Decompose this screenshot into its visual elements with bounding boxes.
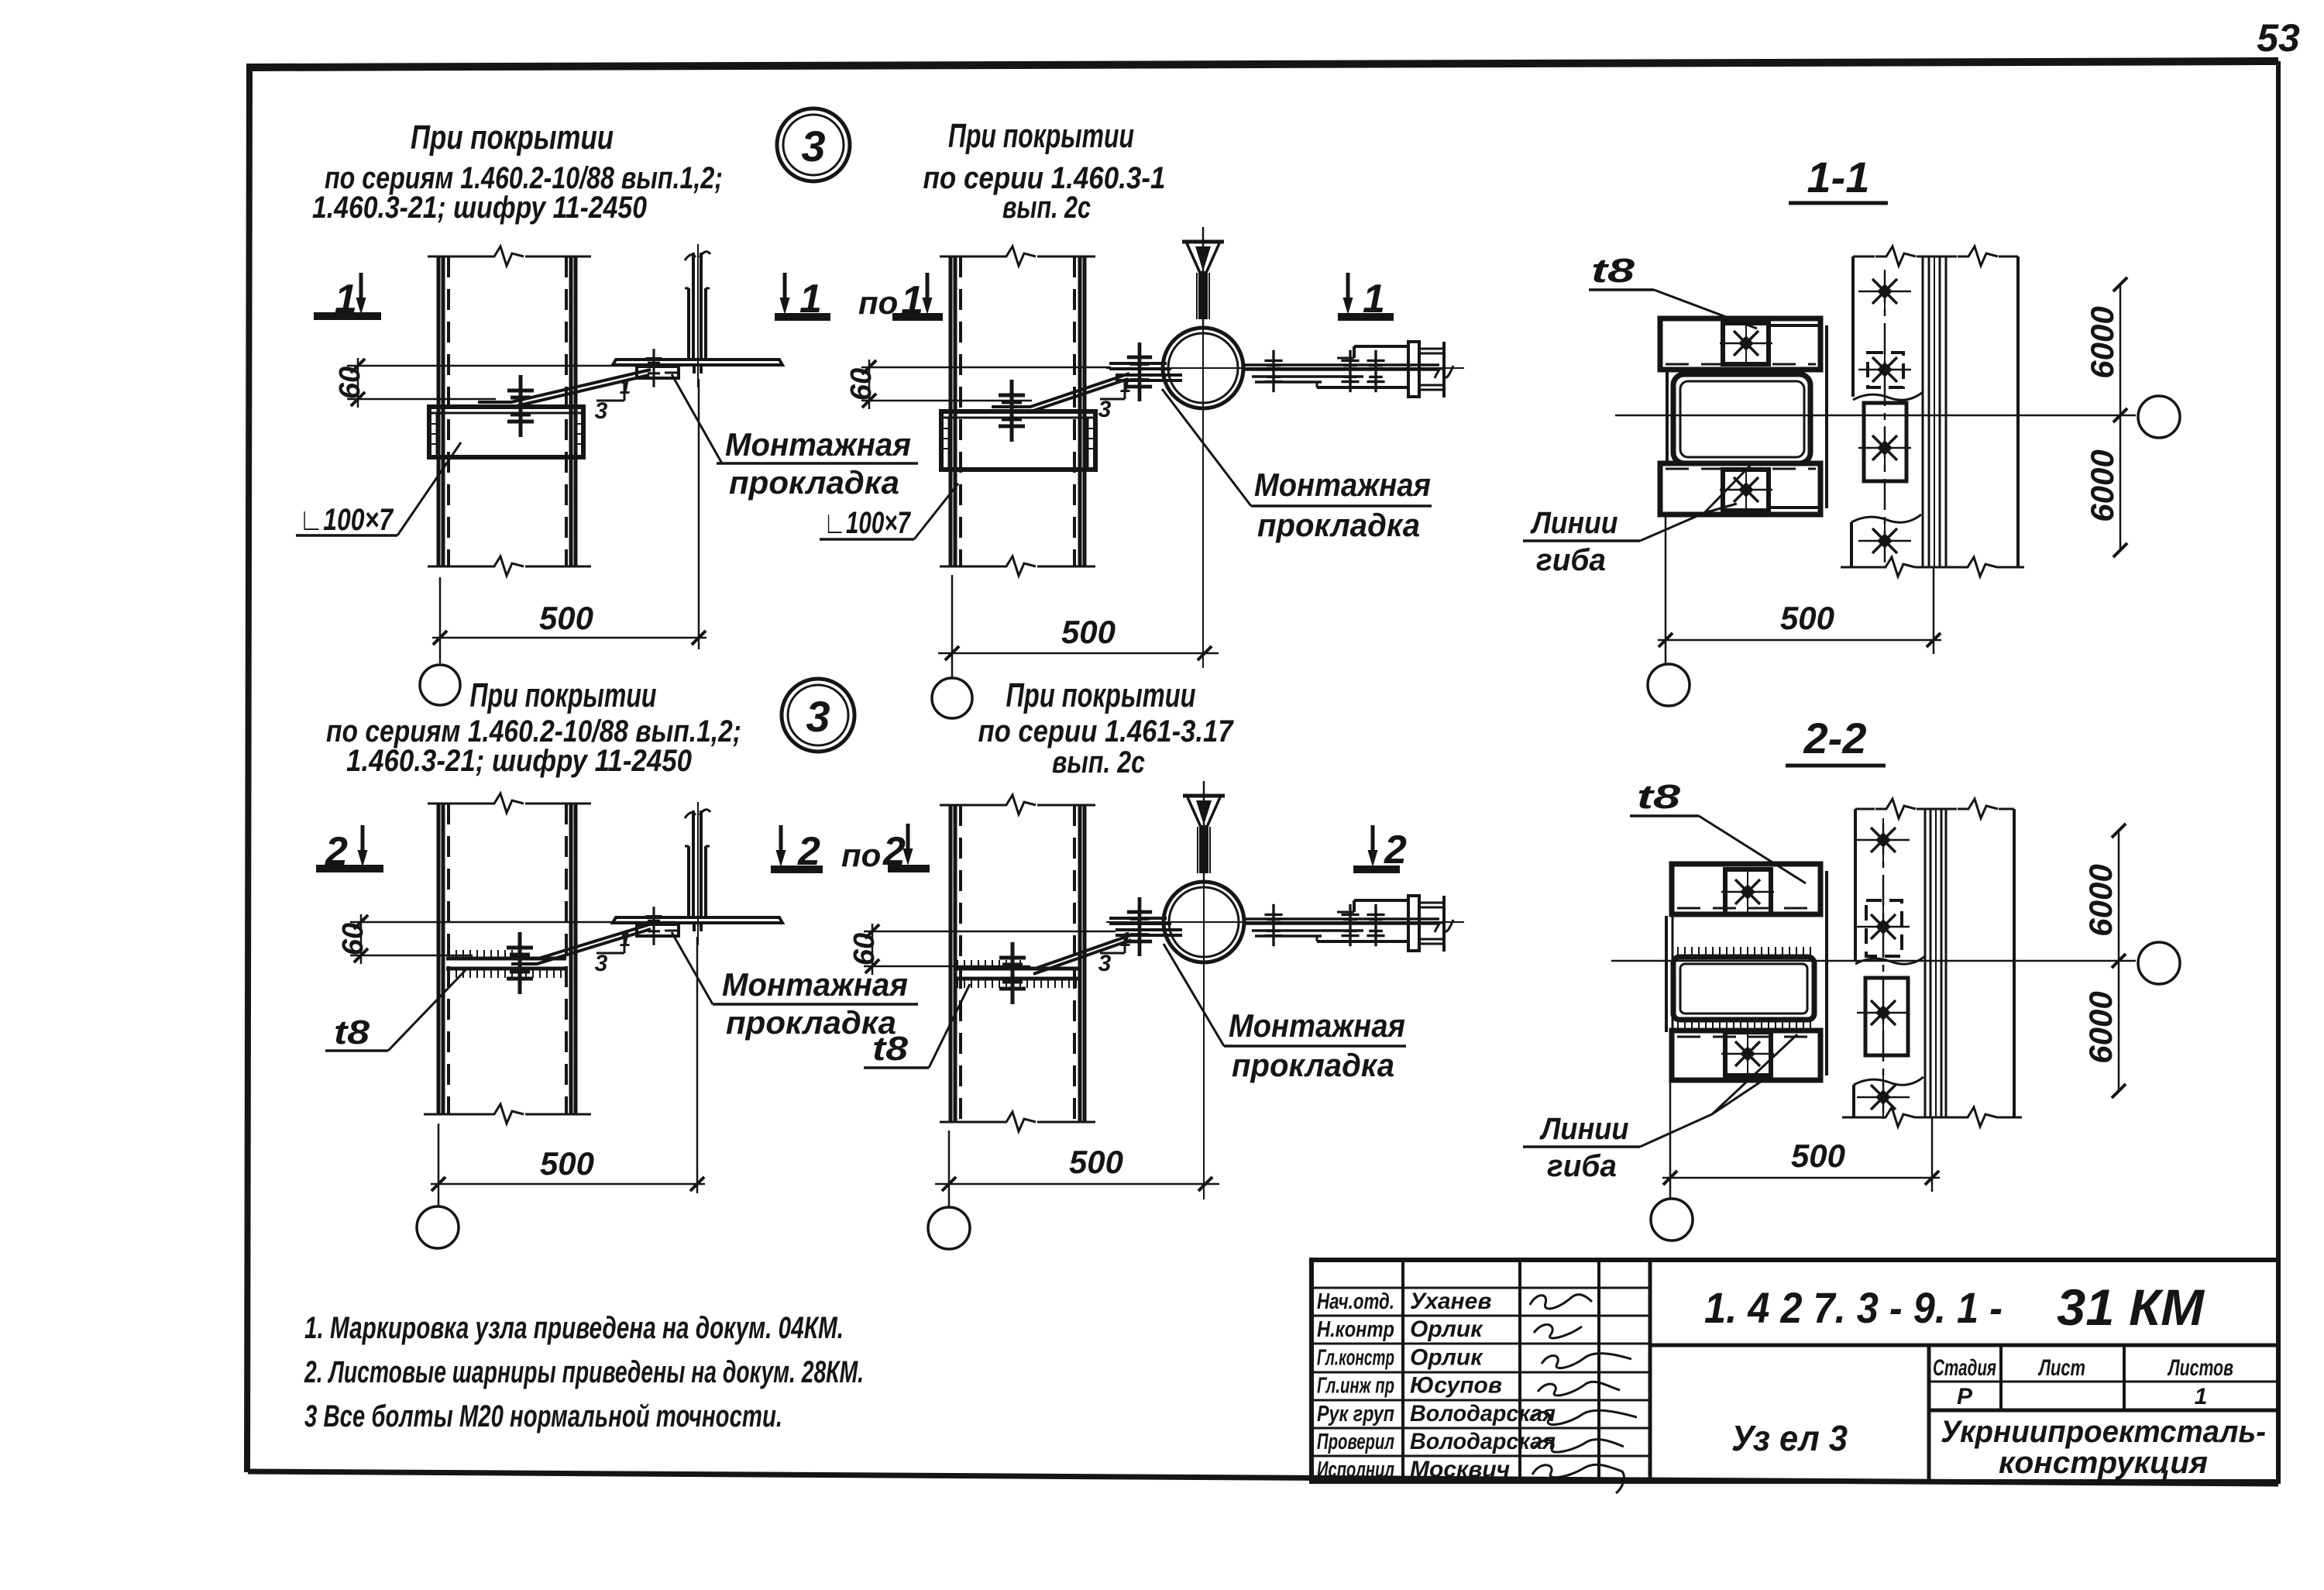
svg-text:1-1: 1-1	[1807, 153, 1870, 201]
svg-text:3: 3	[806, 692, 830, 741]
svg-text:При покрытии: При покрытии	[470, 676, 657, 714]
svg-text:t8: t8	[1637, 778, 1681, 816]
svg-text:Уз ел 3: Уз ел 3	[1731, 1418, 1848, 1458]
svg-text:6000: 6000	[2082, 991, 2119, 1063]
svg-text:Проверил: Проверил	[1317, 1430, 1394, 1454]
svg-text:60: 60	[848, 933, 881, 965]
svg-text:500: 500	[1791, 1137, 1845, 1174]
svg-text:Монтажная: Монтажная	[725, 426, 911, 463]
svg-text:500: 500	[539, 600, 593, 636]
svg-text:Н.контр: Н.контр	[1317, 1317, 1394, 1342]
svg-text:t8: t8	[872, 1030, 909, 1068]
svg-text:3 Все болты М20 нормально: 3 Все болты М20 нормальной точности.	[304, 1399, 782, 1433]
svg-text:∟100×7: ∟100×7	[299, 503, 394, 537]
svg-text:Линии: Линии	[1539, 1112, 1629, 1146]
svg-text:6000: 6000	[2082, 864, 2119, 936]
svg-text:Укрниипроектсталь-: Укрниипроектсталь-	[1941, 1415, 2266, 1449]
svg-text:t8: t8	[334, 1014, 370, 1051]
svg-text:прокладка: прокладка	[726, 1004, 896, 1041]
svg-text:2. Листовые шарниры приведе: 2. Листовые шарниры приведены на докум. …	[304, 1355, 864, 1389]
svg-text:Володарская: Володарская	[1410, 1429, 1556, 1454]
svg-text:Лист: Лист	[2038, 1355, 2085, 1381]
svg-text:6000: 6000	[2084, 449, 2120, 521]
svg-text:Монтажная: Монтажная	[1254, 466, 1431, 503]
svg-text:6000: 6000	[2084, 306, 2120, 378]
svg-text:Исполнил: Исполнил	[1317, 1457, 1394, 1482]
svg-text:3: 3	[595, 398, 608, 424]
svg-text:53: 53	[2257, 16, 2300, 60]
svg-text:500: 500	[1061, 614, 1116, 650]
svg-text:∟100×7: ∟100×7	[823, 506, 911, 540]
svg-text:При покрытии: При покрытии	[1006, 676, 1196, 714]
svg-text:по: по	[841, 837, 881, 873]
svg-text:конструкция: конструкция	[1999, 1446, 2208, 1480]
svg-text:500: 500	[540, 1145, 594, 1182]
svg-text:прокладка: прокладка	[1232, 1047, 1394, 1083]
svg-text:Монтажная: Монтажная	[722, 966, 908, 1003]
svg-text:Стадия: Стадия	[1933, 1355, 1996, 1381]
svg-text:гиба: гиба	[1536, 543, 1606, 577]
svg-text:3: 3	[595, 951, 608, 976]
svg-text:гиба: гиба	[1547, 1149, 1617, 1183]
svg-text:Линии: Линии	[1530, 506, 1618, 540]
svg-text:1: 1	[2195, 1384, 2208, 1409]
svg-text:500: 500	[1069, 1144, 1123, 1180]
svg-text:Гл.констр: Гл.констр	[1317, 1345, 1394, 1370]
svg-text:При покрытии: При покрытии	[411, 119, 614, 157]
svg-text:Листов: Листов	[2168, 1355, 2233, 1381]
svg-text:Уханев: Уханев	[1410, 1289, 1491, 1314]
svg-text:прокладка: прокладка	[729, 464, 899, 501]
svg-text:1. 4 2 7. 3 - 9. 1 -: 1. 4 2 7. 3 - 9. 1 -	[1704, 1283, 2003, 1332]
svg-text:Юсупов: Юсупов	[1410, 1373, 1502, 1399]
svg-text:3: 3	[1098, 397, 1112, 422]
svg-text:60: 60	[337, 923, 370, 955]
svg-text:прокладка: прокладка	[1257, 507, 1420, 543]
svg-text:по: по	[858, 284, 898, 321]
svg-text:31 КМ: 31 КМ	[2057, 1279, 2205, 1336]
svg-text:1. Маркировка узла приведен: 1. Маркировка узла приведена на докум. 0…	[304, 1311, 844, 1345]
svg-text:1: 1	[620, 375, 631, 398]
svg-text:1.460.3-21; шифру 11-2450: 1.460.3-21; шифру 11-2450	[346, 744, 692, 778]
svg-text:3: 3	[801, 122, 825, 170]
svg-text:Монтажная: Монтажная	[1229, 1007, 1405, 1044]
svg-text:1: 1	[620, 927, 631, 951]
svg-text:60: 60	[334, 367, 366, 399]
svg-text:60: 60	[845, 368, 878, 401]
svg-text:Москвич: Москвич	[1410, 1457, 1510, 1482]
svg-text:вып. 2с: вып. 2с	[1052, 745, 1145, 780]
svg-text:3: 3	[1098, 951, 1112, 976]
svg-text:по серии 1.461-3.17: по серии 1.461-3.17	[978, 714, 1235, 749]
svg-text:500: 500	[1780, 600, 1834, 636]
svg-text:Гл.инж пр: Гл.инж пр	[1317, 1374, 1394, 1399]
svg-text:Орлик: Орлик	[1410, 1316, 1483, 1342]
svg-text:Рук груп: Рук груп	[1317, 1402, 1394, 1427]
svg-text:При покрытии: При покрытии	[948, 117, 1134, 155]
svg-text:вып. 2с: вып. 2с	[1002, 191, 1091, 225]
svg-text:t8: t8	[1591, 252, 1635, 290]
svg-text:Володарская: Володарская	[1410, 1401, 1556, 1427]
svg-text:1.460.3-21; шифру 11-2450: 1.460.3-21; шифру 11-2450	[312, 191, 647, 225]
svg-text:Р: Р	[1957, 1384, 1973, 1409]
svg-text:Орлик: Орлик	[1410, 1344, 1483, 1370]
svg-text:2-2: 2-2	[1803, 714, 1867, 762]
svg-text:Нач.отд.: Нач.отд.	[1317, 1289, 1394, 1314]
